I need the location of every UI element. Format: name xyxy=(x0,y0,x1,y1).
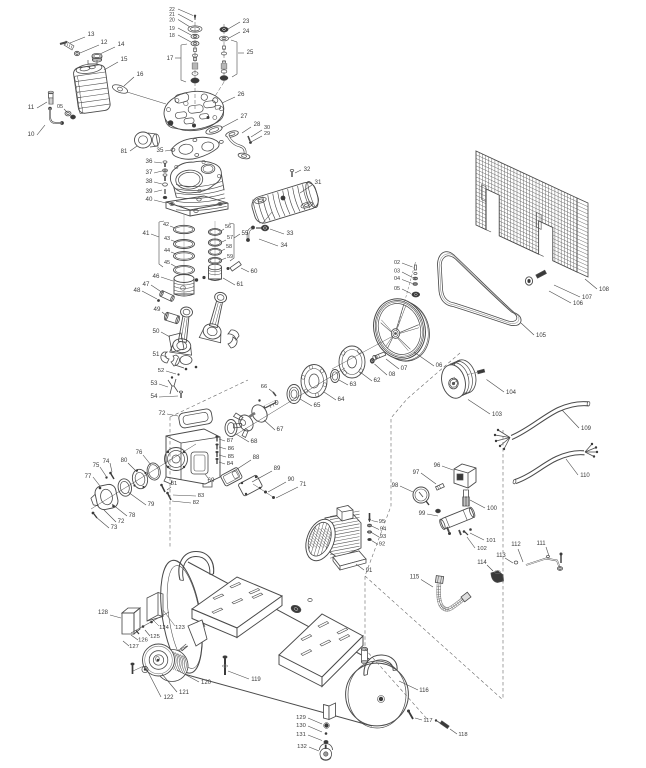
svg-text:89: 89 xyxy=(274,466,281,472)
svg-text:101: 101 xyxy=(486,538,496,544)
svg-text:96: 96 xyxy=(434,463,441,469)
svg-text:47: 47 xyxy=(143,281,150,288)
svg-text:115: 115 xyxy=(410,575,420,581)
svg-text:12: 12 xyxy=(101,39,108,46)
svg-text:73: 73 xyxy=(111,525,118,531)
svg-text:90: 90 xyxy=(288,477,295,483)
svg-text:28: 28 xyxy=(254,122,261,128)
svg-text:39: 39 xyxy=(146,188,153,195)
svg-text:71: 71 xyxy=(300,482,307,488)
svg-text:07: 07 xyxy=(401,366,408,372)
svg-text:51: 51 xyxy=(153,351,160,358)
svg-text:105: 105 xyxy=(536,333,547,339)
svg-text:32: 32 xyxy=(304,167,311,173)
svg-text:69: 69 xyxy=(208,477,215,484)
svg-text:49: 49 xyxy=(154,306,161,313)
svg-text:109: 109 xyxy=(581,426,592,432)
svg-text:128: 128 xyxy=(98,610,109,616)
svg-text:53: 53 xyxy=(151,380,158,387)
svg-text:18: 18 xyxy=(169,33,175,39)
svg-text:72: 72 xyxy=(159,410,166,417)
svg-text:60: 60 xyxy=(251,268,258,275)
svg-text:65: 65 xyxy=(314,402,321,409)
svg-text:85: 85 xyxy=(228,454,234,460)
svg-text:74: 74 xyxy=(103,459,110,465)
svg-text:108: 108 xyxy=(599,287,610,293)
svg-text:125: 125 xyxy=(150,634,160,640)
svg-text:106: 106 xyxy=(573,301,584,307)
svg-text:123: 123 xyxy=(175,625,185,631)
svg-text:10: 10 xyxy=(28,131,35,138)
svg-text:35: 35 xyxy=(157,147,164,154)
svg-text:72: 72 xyxy=(118,519,125,525)
svg-text:44: 44 xyxy=(164,248,170,254)
svg-text:59: 59 xyxy=(227,254,233,260)
svg-text:103: 103 xyxy=(492,412,503,418)
svg-text:93: 93 xyxy=(380,534,386,540)
svg-text:75: 75 xyxy=(93,463,100,469)
svg-text:20: 20 xyxy=(169,18,175,24)
svg-text:99: 99 xyxy=(419,511,426,517)
svg-text:05: 05 xyxy=(394,286,400,292)
svg-text:95: 95 xyxy=(379,519,385,525)
svg-text:131: 131 xyxy=(296,732,306,738)
svg-text:45: 45 xyxy=(164,260,170,266)
svg-text:100: 100 xyxy=(487,506,498,512)
svg-text:03: 03 xyxy=(394,269,400,275)
svg-text:102: 102 xyxy=(477,546,487,552)
svg-text:132: 132 xyxy=(297,744,307,750)
svg-text:52: 52 xyxy=(158,368,164,374)
svg-text:37: 37 xyxy=(146,169,153,176)
svg-text:76: 76 xyxy=(136,450,143,456)
svg-text:114: 114 xyxy=(477,560,487,566)
svg-text:83: 83 xyxy=(198,493,204,499)
svg-text:08: 08 xyxy=(389,372,396,378)
svg-text:88: 88 xyxy=(253,455,260,461)
svg-text:68: 68 xyxy=(251,438,258,445)
svg-text:82: 82 xyxy=(193,500,199,506)
svg-text:04: 04 xyxy=(394,276,400,282)
svg-text:117: 117 xyxy=(423,718,432,724)
svg-text:87: 87 xyxy=(227,438,233,444)
svg-text:26: 26 xyxy=(238,91,245,98)
svg-text:86: 86 xyxy=(228,446,234,452)
svg-text:98: 98 xyxy=(392,483,399,489)
svg-text:62: 62 xyxy=(374,377,381,384)
svg-text:55: 55 xyxy=(242,230,249,237)
svg-text:50: 50 xyxy=(153,328,160,335)
svg-text:14: 14 xyxy=(118,41,125,48)
svg-text:43: 43 xyxy=(164,236,170,242)
svg-text:19: 19 xyxy=(169,26,175,32)
svg-text:02: 02 xyxy=(394,260,400,266)
svg-text:111: 111 xyxy=(536,541,546,547)
svg-text:121: 121 xyxy=(179,690,190,696)
svg-text:122: 122 xyxy=(163,695,174,701)
svg-text:110: 110 xyxy=(580,473,590,479)
svg-text:17: 17 xyxy=(167,56,174,62)
svg-text:11: 11 xyxy=(28,104,35,111)
svg-text:78: 78 xyxy=(129,513,136,519)
svg-text:56: 56 xyxy=(225,224,231,230)
svg-text:79: 79 xyxy=(148,502,155,508)
svg-text:104: 104 xyxy=(506,390,517,396)
svg-text:05: 05 xyxy=(57,104,63,110)
svg-text:127: 127 xyxy=(129,644,139,650)
svg-text:112: 112 xyxy=(511,542,521,548)
svg-text:81: 81 xyxy=(171,481,177,487)
svg-text:46: 46 xyxy=(153,273,160,280)
svg-text:33: 33 xyxy=(287,230,294,237)
svg-text:54: 54 xyxy=(151,393,158,400)
svg-text:27: 27 xyxy=(241,113,248,120)
svg-text:64: 64 xyxy=(338,396,345,403)
svg-text:48: 48 xyxy=(134,287,141,294)
svg-text:16: 16 xyxy=(137,71,144,78)
svg-text:57: 57 xyxy=(227,235,233,241)
svg-text:41: 41 xyxy=(143,230,150,237)
svg-text:23: 23 xyxy=(243,19,250,25)
svg-text:31: 31 xyxy=(315,179,322,186)
svg-text:15: 15 xyxy=(121,56,128,63)
svg-text:67: 67 xyxy=(277,426,284,433)
svg-text:38: 38 xyxy=(146,178,153,185)
svg-text:63: 63 xyxy=(350,381,357,388)
svg-text:58: 58 xyxy=(226,244,232,250)
svg-text:77: 77 xyxy=(85,474,92,480)
svg-text:130: 130 xyxy=(296,723,306,729)
svg-text:120: 120 xyxy=(201,680,212,686)
svg-text:42: 42 xyxy=(163,222,169,228)
svg-text:24: 24 xyxy=(243,29,250,35)
svg-text:80: 80 xyxy=(121,458,128,464)
svg-text:34: 34 xyxy=(281,242,288,249)
svg-text:81: 81 xyxy=(121,149,128,155)
svg-text:84: 84 xyxy=(227,461,234,467)
svg-text:06: 06 xyxy=(436,363,443,369)
svg-text:61: 61 xyxy=(237,281,244,288)
svg-text:40: 40 xyxy=(146,196,153,203)
svg-text:66: 66 xyxy=(261,384,267,390)
svg-text:118: 118 xyxy=(458,732,467,738)
svg-text:116: 116 xyxy=(419,688,429,694)
svg-text:113: 113 xyxy=(496,553,506,559)
svg-text:13: 13 xyxy=(88,31,95,38)
svg-text:126: 126 xyxy=(138,638,148,644)
svg-text:124: 124 xyxy=(159,625,169,631)
svg-text:119: 119 xyxy=(251,677,261,683)
svg-text:129: 129 xyxy=(296,715,306,721)
svg-text:29: 29 xyxy=(264,131,270,137)
svg-text:97: 97 xyxy=(413,470,420,476)
svg-text:36: 36 xyxy=(146,158,153,165)
svg-text:107: 107 xyxy=(582,295,593,301)
svg-text:94: 94 xyxy=(380,527,387,533)
svg-text:92: 92 xyxy=(379,542,385,548)
svg-text:25: 25 xyxy=(247,50,254,56)
